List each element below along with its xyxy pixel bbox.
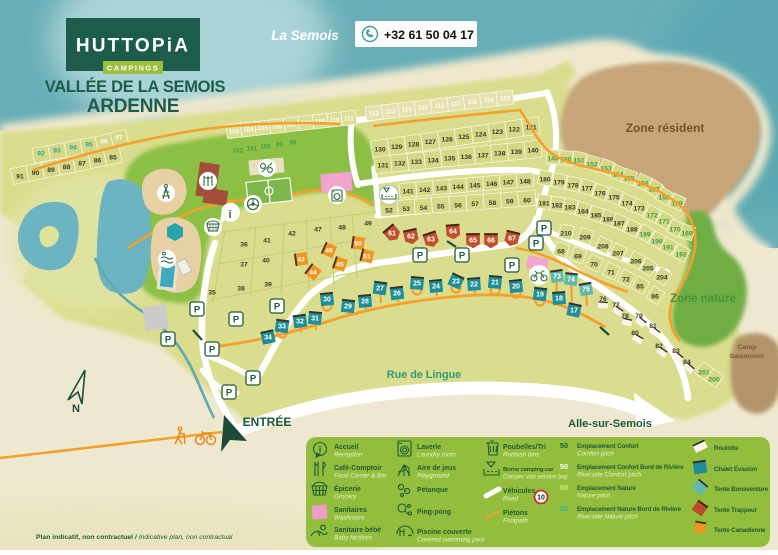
svg-text:102: 102 bbox=[233, 147, 244, 154]
svg-text:45: 45 bbox=[336, 261, 344, 268]
svg-text:Footpath: Footpath bbox=[503, 518, 528, 525]
svg-text:i: i bbox=[319, 445, 322, 455]
svg-text:89: 89 bbox=[47, 167, 55, 174]
svg-text:40: 40 bbox=[262, 257, 270, 264]
svg-text:205: 205 bbox=[642, 265, 654, 272]
svg-text:172: 172 bbox=[646, 212, 658, 219]
svg-text:37: 37 bbox=[240, 261, 248, 268]
svg-text:Covered swimming pool: Covered swimming pool bbox=[417, 537, 485, 544]
svg-text:P: P bbox=[233, 315, 240, 326]
svg-text:Roulotte: Roulotte bbox=[714, 445, 739, 452]
svg-text:Café-Comptoir: Café-Comptoir bbox=[334, 465, 382, 472]
svg-text:185: 185 bbox=[590, 212, 602, 219]
svg-text:188: 188 bbox=[626, 226, 638, 233]
svg-text:VALLÉE DE LA SEMOIS: VALLÉE DE LA SEMOIS bbox=[45, 77, 226, 96]
svg-text:100: 100 bbox=[260, 143, 271, 150]
svg-text:134: 134 bbox=[427, 157, 439, 164]
svg-text:146: 146 bbox=[486, 181, 498, 188]
svg-text:Emplacement Nature: Emplacement Nature bbox=[577, 485, 637, 492]
svg-text:CAMPINGS: CAMPINGS bbox=[107, 64, 159, 73]
svg-text:175: 175 bbox=[608, 194, 620, 201]
svg-text:49: 49 bbox=[364, 220, 372, 227]
svg-text:98: 98 bbox=[290, 139, 297, 146]
svg-text:180: 180 bbox=[539, 176, 551, 183]
svg-text:201: 201 bbox=[698, 369, 710, 376]
svg-text:18: 18 bbox=[555, 296, 563, 303]
svg-text:97: 97 bbox=[115, 134, 123, 141]
svg-text:53: 53 bbox=[402, 206, 410, 213]
svg-text:Comfort pitch: Comfort pitch bbox=[577, 451, 614, 458]
svg-text:P: P bbox=[165, 335, 172, 346]
svg-text:114: 114 bbox=[402, 107, 413, 114]
svg-text:23: 23 bbox=[452, 279, 460, 286]
svg-text:Emplacement Nature Bord de Riv: Emplacement Nature Bord de Rivière bbox=[577, 506, 682, 513]
svg-text:39: 39 bbox=[264, 281, 272, 288]
svg-text:137: 137 bbox=[477, 152, 489, 159]
svg-text:Borne camping-car: Borne camping-car bbox=[503, 467, 554, 473]
svg-text:56: 56 bbox=[454, 202, 462, 209]
svg-text:86: 86 bbox=[651, 293, 659, 300]
svg-text:128: 128 bbox=[408, 141, 420, 148]
svg-text:143: 143 bbox=[436, 185, 448, 192]
svg-text:129: 129 bbox=[391, 144, 403, 151]
svg-text:191: 191 bbox=[662, 244, 674, 251]
svg-text:P: P bbox=[209, 345, 216, 356]
svg-text:Laundry room: Laundry room bbox=[417, 452, 456, 459]
svg-text:74: 74 bbox=[567, 277, 575, 284]
svg-text:Ping-pong: Ping-pong bbox=[417, 509, 451, 516]
svg-text:ENTRÉE: ENTRÉE bbox=[243, 414, 292, 429]
svg-text:176: 176 bbox=[594, 190, 606, 197]
svg-text:22: 22 bbox=[470, 282, 478, 289]
svg-text:Road: Road bbox=[503, 496, 519, 503]
svg-text:20: 20 bbox=[512, 284, 520, 291]
svg-text:19: 19 bbox=[536, 292, 544, 299]
svg-text:105: 105 bbox=[258, 125, 269, 132]
svg-text:29: 29 bbox=[344, 304, 352, 311]
svg-text:73: 73 bbox=[553, 274, 561, 281]
svg-text:132: 132 bbox=[394, 161, 406, 168]
svg-text:85: 85 bbox=[636, 283, 644, 290]
svg-text:104: 104 bbox=[243, 127, 254, 134]
svg-text:206: 206 bbox=[630, 258, 642, 265]
svg-text:64: 64 bbox=[449, 229, 457, 236]
svg-text:30: 30 bbox=[323, 297, 331, 304]
svg-text:142: 142 bbox=[419, 187, 431, 194]
svg-text:P: P bbox=[194, 305, 201, 316]
svg-text:Riverside Comfort pitch: Riverside Comfort pitch bbox=[577, 472, 642, 479]
svg-text:63: 63 bbox=[427, 237, 435, 244]
svg-text:61: 61 bbox=[388, 231, 396, 238]
svg-text:72: 72 bbox=[622, 276, 630, 283]
svg-text:33: 33 bbox=[278, 324, 286, 331]
svg-text:N: N bbox=[72, 403, 80, 415]
svg-text:Zone résident: Zone résident bbox=[626, 121, 705, 135]
svg-text:Pétanque: Pétanque bbox=[417, 487, 448, 494]
svg-text:10: 10 bbox=[537, 495, 545, 502]
svg-text:Baby facilities: Baby facilities bbox=[334, 535, 373, 542]
svg-text:Camper van service bay: Camper van service bay bbox=[503, 475, 569, 481]
svg-text:28: 28 bbox=[361, 299, 369, 306]
svg-text:119: 119 bbox=[484, 97, 495, 104]
svg-text:76: 76 bbox=[599, 296, 607, 303]
svg-text:192: 192 bbox=[675, 251, 687, 258]
svg-text:200: 200 bbox=[708, 376, 720, 383]
svg-text:79: 79 bbox=[635, 313, 643, 320]
svg-text:136: 136 bbox=[461, 154, 473, 161]
svg-text:48: 48 bbox=[338, 224, 346, 231]
svg-text:115: 115 bbox=[418, 105, 429, 112]
svg-text:69: 69 bbox=[574, 253, 582, 260]
svg-text:174: 174 bbox=[621, 200, 633, 207]
svg-text:113: 113 bbox=[385, 108, 396, 115]
svg-text:126: 126 bbox=[441, 137, 453, 144]
svg-text:Sanitaire bébé: Sanitaire bébé bbox=[334, 527, 381, 534]
svg-text:148: 148 bbox=[519, 178, 531, 185]
svg-text:50: 50 bbox=[560, 504, 568, 513]
svg-text:43: 43 bbox=[297, 256, 305, 263]
svg-text:187: 187 bbox=[613, 220, 625, 227]
svg-text:65: 65 bbox=[469, 238, 477, 245]
svg-text:36: 36 bbox=[240, 241, 248, 248]
svg-text:P: P bbox=[274, 302, 281, 313]
svg-text:+32 61 50 04 17: +32 61 50 04 17 bbox=[384, 28, 474, 42]
svg-text:50: 50 bbox=[560, 483, 568, 492]
svg-text:147: 147 bbox=[503, 180, 515, 187]
svg-text:122: 122 bbox=[509, 127, 521, 134]
svg-text:Chalet Évasion: Chalet Évasion bbox=[714, 464, 757, 473]
svg-text:17: 17 bbox=[570, 308, 578, 315]
svg-text:ARDENNE: ARDENNE bbox=[87, 96, 180, 117]
svg-text:75: 75 bbox=[582, 287, 590, 294]
svg-text:50: 50 bbox=[560, 462, 568, 471]
svg-text:42: 42 bbox=[288, 230, 296, 237]
svg-text:127: 127 bbox=[425, 139, 437, 146]
svg-text:91: 91 bbox=[16, 173, 24, 180]
svg-text:170: 170 bbox=[669, 226, 681, 233]
svg-text:21: 21 bbox=[491, 280, 499, 287]
svg-text:25: 25 bbox=[413, 281, 421, 288]
svg-text:80: 80 bbox=[631, 330, 639, 337]
svg-text:68: 68 bbox=[557, 248, 565, 255]
svg-text:Tente Trappeur: Tente Trappeur bbox=[714, 507, 758, 514]
svg-text:52: 52 bbox=[385, 207, 393, 214]
svg-text:81: 81 bbox=[649, 323, 657, 330]
svg-text:34: 34 bbox=[264, 335, 272, 342]
svg-text:47: 47 bbox=[314, 226, 322, 233]
svg-text:24: 24 bbox=[432, 284, 440, 291]
svg-text:181: 181 bbox=[538, 200, 550, 207]
svg-text:Saisonnier: Saisonnier bbox=[730, 353, 765, 360]
svg-text:50: 50 bbox=[560, 441, 568, 450]
svg-text:38: 38 bbox=[237, 285, 245, 292]
svg-text:Emplacement Confort: Emplacement Confort bbox=[577, 443, 639, 450]
svg-text:Aire de jeux: Aire de jeux bbox=[417, 465, 456, 472]
svg-text:210: 210 bbox=[560, 230, 572, 237]
svg-text:Food Corner & Bar: Food Corner & Bar bbox=[334, 473, 388, 480]
svg-text:Camp: Camp bbox=[738, 344, 757, 351]
svg-text:P: P bbox=[541, 224, 548, 235]
svg-text:P: P bbox=[509, 261, 516, 272]
svg-text:171: 171 bbox=[658, 218, 670, 225]
svg-text:204: 204 bbox=[656, 274, 668, 281]
svg-text:27: 27 bbox=[376, 286, 384, 293]
svg-text:P: P bbox=[417, 251, 424, 262]
svg-text:41: 41 bbox=[263, 237, 271, 244]
svg-text:184: 184 bbox=[577, 208, 589, 215]
svg-text:83: 83 bbox=[672, 348, 680, 355]
svg-text:173: 173 bbox=[633, 205, 645, 212]
svg-text:94: 94 bbox=[69, 144, 77, 151]
svg-text:Nature pitch: Nature pitch bbox=[577, 493, 611, 500]
svg-text:67: 67 bbox=[508, 236, 516, 243]
svg-text:144: 144 bbox=[452, 184, 464, 191]
svg-text:123: 123 bbox=[492, 129, 504, 136]
svg-text:Véhicules: Véhicules bbox=[503, 488, 535, 495]
svg-text:133: 133 bbox=[411, 159, 423, 166]
svg-text:139: 139 bbox=[511, 149, 523, 156]
svg-text:90: 90 bbox=[32, 170, 40, 177]
svg-text:Rue de Lingue: Rue de Lingue bbox=[387, 369, 461, 381]
svg-text:70: 70 bbox=[590, 261, 598, 268]
svg-text:84: 84 bbox=[683, 359, 691, 366]
svg-text:Plan indicatif, non contractue: Plan indicatif, non contractuel / Indica… bbox=[36, 534, 233, 541]
svg-text:Piscine couverte: Piscine couverte bbox=[417, 529, 472, 536]
svg-text:125: 125 bbox=[458, 134, 470, 141]
svg-text:Zone nature: Zone nature bbox=[670, 293, 736, 305]
svg-text:141: 141 bbox=[402, 188, 414, 195]
svg-text:135: 135 bbox=[444, 156, 456, 163]
svg-text:Poubelles/Tri: Poubelles/Tri bbox=[503, 444, 546, 451]
svg-text:60: 60 bbox=[523, 197, 531, 204]
svg-text:96: 96 bbox=[100, 138, 108, 145]
svg-text:46: 46 bbox=[325, 247, 333, 254]
svg-text:Washroom: Washroom bbox=[334, 515, 364, 522]
svg-text:59: 59 bbox=[506, 199, 514, 206]
svg-text:Piétons: Piétons bbox=[503, 510, 528, 517]
svg-text:86: 86 bbox=[94, 158, 102, 165]
svg-text:Playground: Playground bbox=[417, 473, 449, 480]
svg-text:P: P bbox=[226, 388, 233, 399]
svg-text:71: 71 bbox=[607, 269, 615, 276]
svg-text:Alle-sur-Semois: Alle-sur-Semois bbox=[568, 418, 652, 430]
svg-text:Reception: Reception bbox=[334, 452, 363, 459]
svg-text:32: 32 bbox=[296, 319, 304, 326]
svg-text:209: 209 bbox=[579, 234, 591, 241]
svg-text:101: 101 bbox=[247, 145, 258, 152]
svg-text:La Semois: La Semois bbox=[271, 28, 339, 43]
svg-text:62: 62 bbox=[407, 234, 415, 241]
svg-text:85: 85 bbox=[109, 154, 117, 161]
svg-text:P: P bbox=[533, 239, 540, 250]
svg-text:111: 111 bbox=[344, 115, 354, 122]
svg-text:87: 87 bbox=[78, 161, 86, 168]
svg-text:50: 50 bbox=[354, 240, 362, 247]
svg-text:Laverie: Laverie bbox=[417, 444, 441, 451]
svg-text:120: 120 bbox=[500, 95, 511, 102]
svg-text:HUTTOPiA: HUTTOPiA bbox=[76, 36, 190, 57]
svg-text:31: 31 bbox=[311, 316, 319, 323]
svg-text:i: i bbox=[228, 209, 231, 221]
svg-text:Sanitaires: Sanitaires bbox=[334, 507, 367, 514]
svg-text:112: 112 bbox=[369, 110, 380, 117]
svg-text:103: 103 bbox=[229, 128, 240, 135]
svg-text:207: 207 bbox=[612, 250, 624, 257]
svg-text:Épicerie: Épicerie bbox=[334, 484, 361, 493]
svg-text:51: 51 bbox=[363, 253, 371, 260]
svg-text:99: 99 bbox=[276, 141, 283, 148]
svg-text:35: 35 bbox=[208, 289, 216, 296]
svg-text:Tente Canadienne: Tente Canadienne bbox=[714, 527, 766, 534]
svg-text:183: 183 bbox=[564, 204, 576, 211]
svg-text:169: 169 bbox=[681, 230, 693, 237]
svg-text:190: 190 bbox=[651, 238, 663, 245]
svg-text:58: 58 bbox=[489, 200, 497, 207]
svg-text:Accueil: Accueil bbox=[334, 444, 359, 451]
svg-text:189: 189 bbox=[639, 231, 651, 238]
svg-text:66: 66 bbox=[487, 238, 495, 245]
svg-text:177: 177 bbox=[581, 185, 593, 192]
svg-text:182: 182 bbox=[551, 202, 563, 209]
svg-text:138: 138 bbox=[494, 151, 506, 158]
svg-text:77: 77 bbox=[612, 302, 620, 309]
svg-text:P: P bbox=[459, 251, 466, 262]
svg-text:208: 208 bbox=[597, 243, 609, 250]
svg-text:Riverside Nature pitch: Riverside Nature pitch bbox=[577, 514, 638, 521]
svg-text:140: 140 bbox=[527, 147, 539, 154]
svg-text:124: 124 bbox=[475, 132, 487, 139]
svg-text:78: 78 bbox=[621, 313, 629, 320]
svg-text:Emplacement Confort Bord de Ri: Emplacement Confort Bord de Rivière bbox=[577, 464, 684, 471]
svg-text:92: 92 bbox=[37, 150, 45, 157]
svg-text:88: 88 bbox=[63, 164, 71, 171]
svg-text:178: 178 bbox=[567, 182, 579, 189]
svg-text:Tente Bonaventure: Tente Bonaventure bbox=[714, 486, 769, 493]
svg-text:116: 116 bbox=[435, 103, 446, 110]
svg-text:117: 117 bbox=[451, 101, 462, 108]
svg-text:Rubbish bins: Rubbish bins bbox=[503, 452, 540, 459]
svg-text:P: P bbox=[250, 374, 257, 385]
svg-text:54: 54 bbox=[420, 205, 428, 212]
svg-text:55: 55 bbox=[437, 204, 445, 211]
svg-text:93: 93 bbox=[53, 147, 61, 154]
svg-text:145: 145 bbox=[469, 183, 481, 190]
svg-text:44: 44 bbox=[309, 269, 317, 276]
svg-text:130: 130 bbox=[374, 146, 386, 153]
svg-text:26: 26 bbox=[393, 291, 401, 298]
svg-text:57: 57 bbox=[471, 201, 479, 208]
svg-text:Grocery: Grocery bbox=[334, 494, 357, 501]
svg-text:179: 179 bbox=[553, 179, 565, 186]
svg-text:82: 82 bbox=[655, 343, 663, 350]
svg-text:95: 95 bbox=[85, 141, 93, 148]
svg-text:118: 118 bbox=[467, 99, 478, 106]
svg-text:131: 131 bbox=[377, 162, 389, 169]
